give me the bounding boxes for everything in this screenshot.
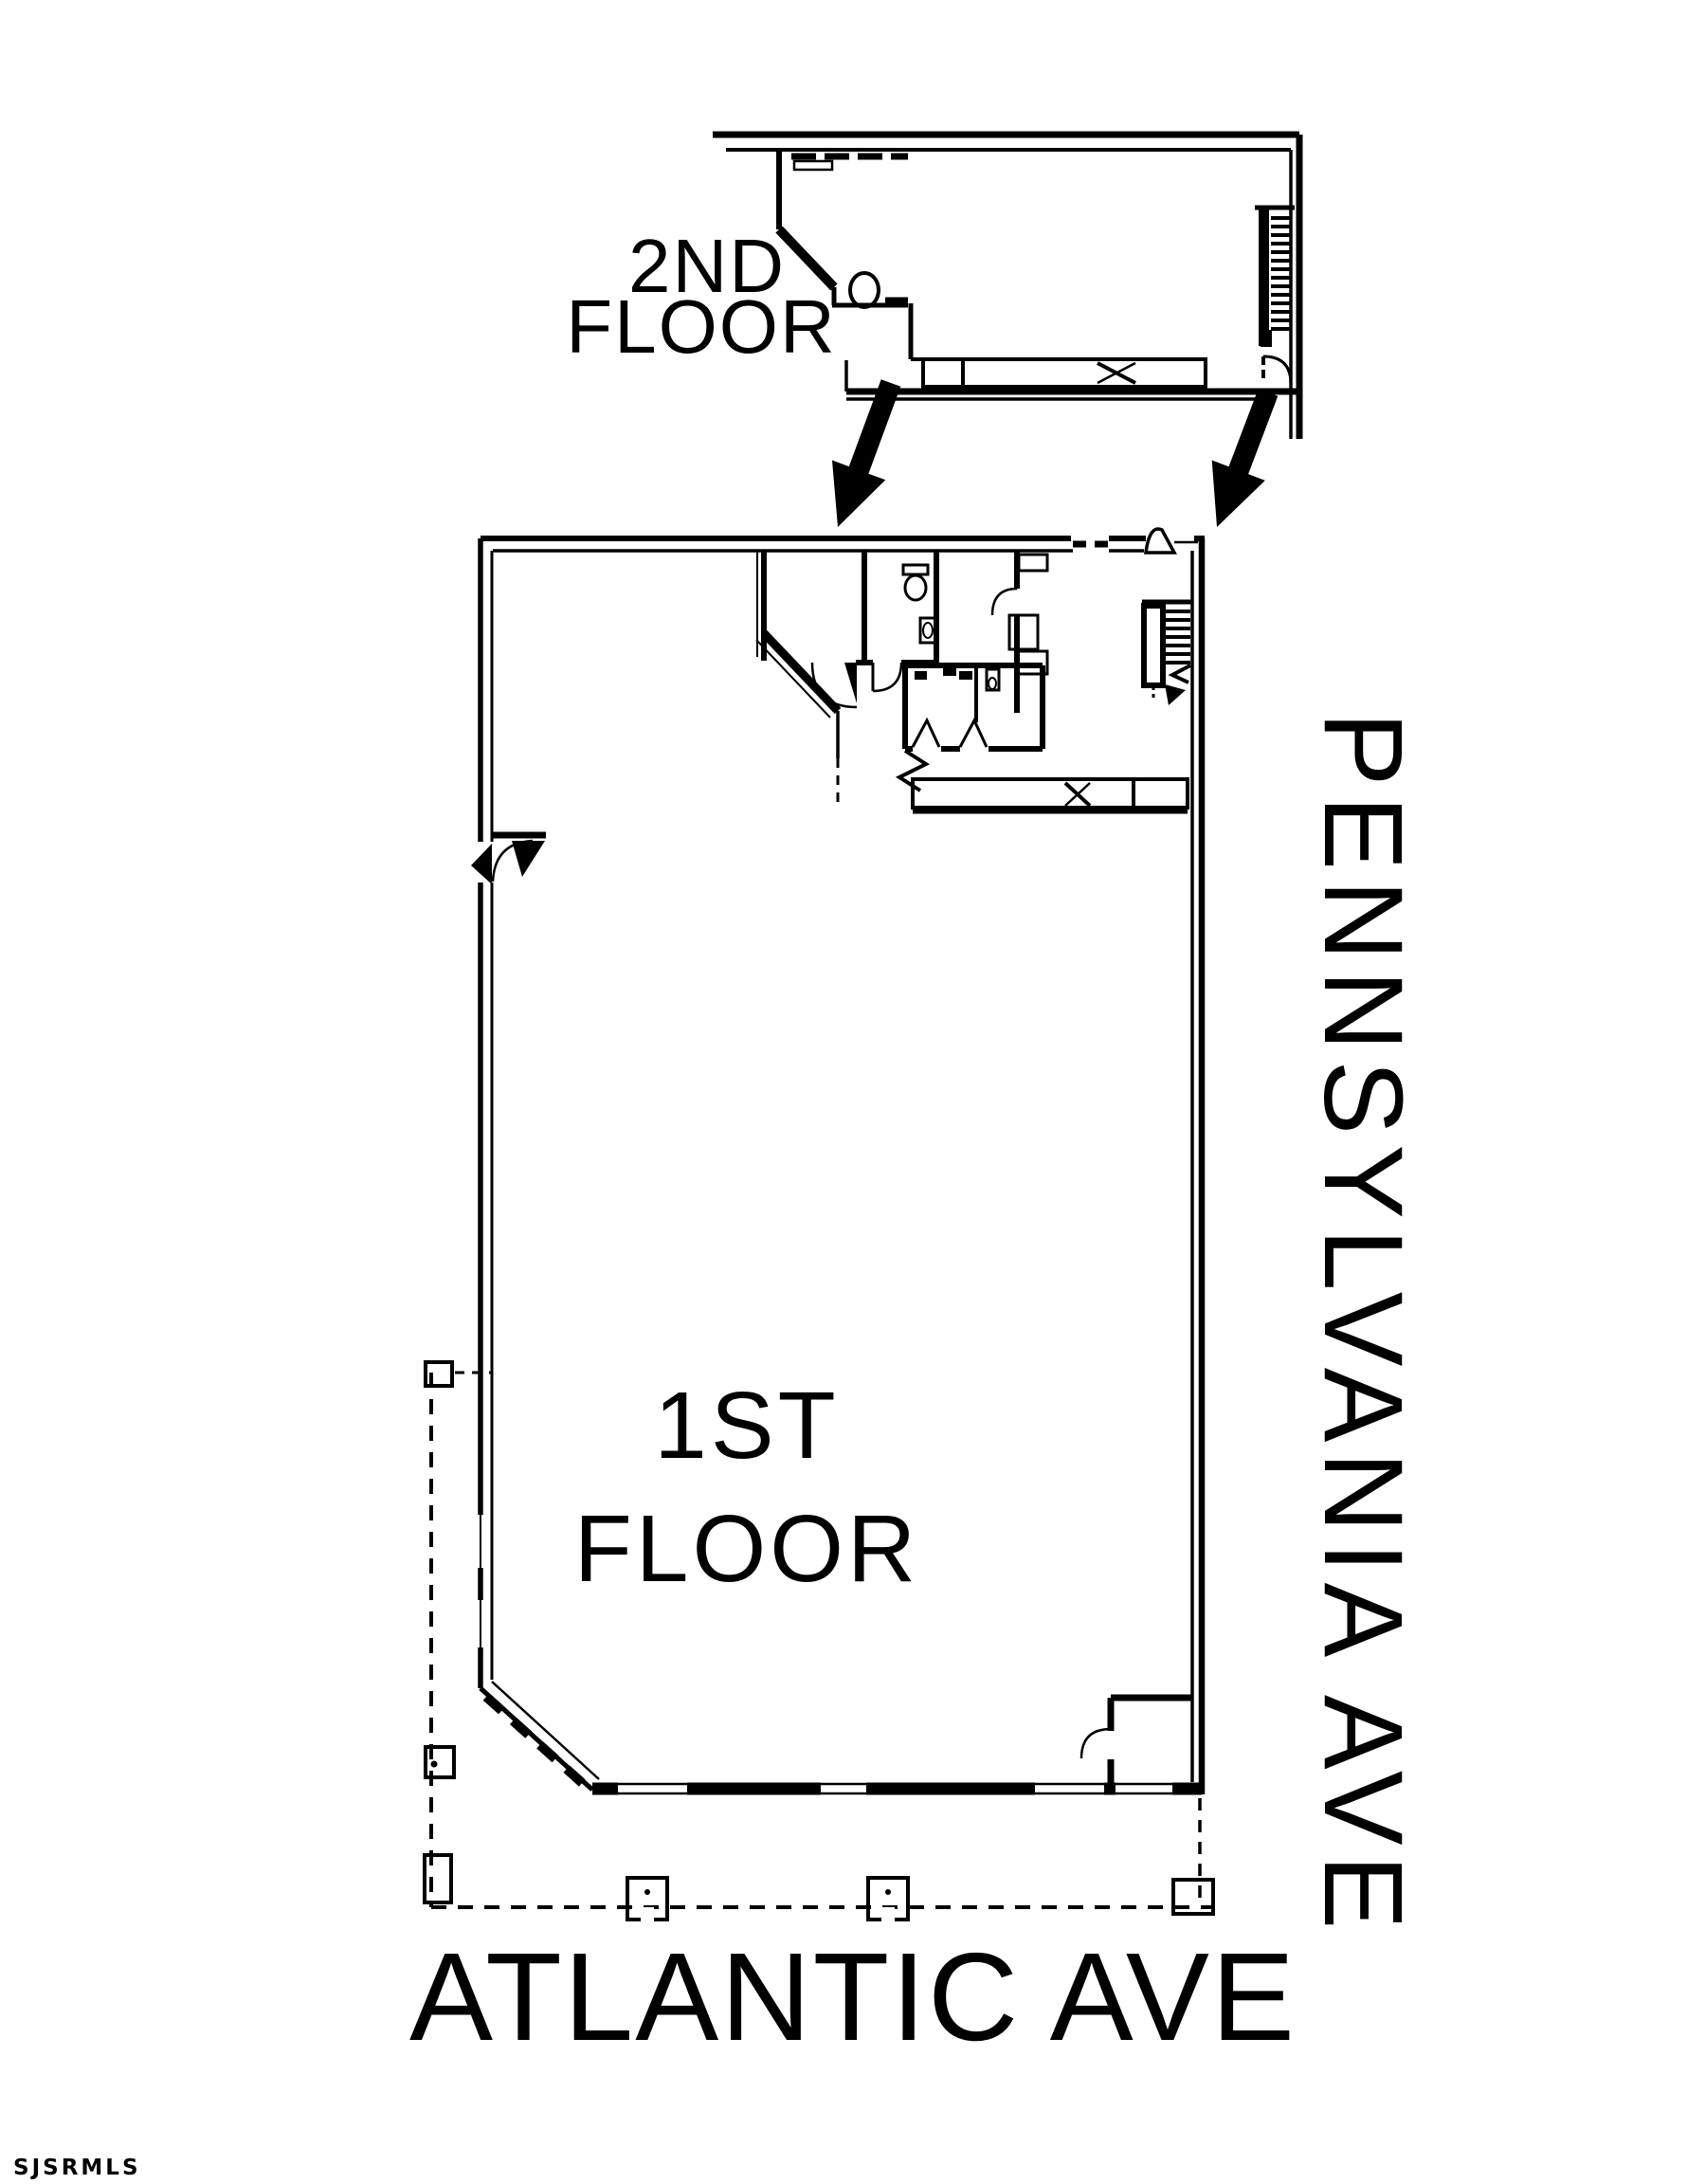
first-floor-plan [425,529,1213,1921]
side-entry-door [471,835,546,884]
bifold-door-icon [913,720,939,747]
restrooms [756,551,1047,802]
closet-counter [923,359,1206,387]
first-floor-stairs-icon [1142,602,1192,705]
toilet-icon [903,565,928,574]
street-label-atlantic-ave: ATLANTIC AVE [409,1927,1297,2066]
mls-watermark: SJSRMLS [13,2156,141,2180]
corner-entry-door [1146,529,1198,553]
chamfer-storefront [481,1682,599,1790]
door-arc-icon [1081,1729,1111,1758]
door-arc-icon [992,589,1017,615]
street-label-pennsylvania-ave: PENNSYLVANIA AVE [1300,712,1425,1939]
level-arrow-left-icon [832,379,900,527]
first-floor-label-line2: FLOOR [574,1496,919,1602]
second-floor-label-line2: FLOOR [566,284,837,369]
angled-window-wall [779,229,834,287]
second-floor-stairs-icon [1255,208,1295,347]
floor-plan-drawing: 2ND FLOOR 1ST FLOOR PENNSYLVANIA AVE ATL… [0,0,1687,2184]
toilet-icon [850,273,879,307]
vestibule [1081,1698,1192,1786]
service-counter [913,779,1188,811]
second-floor-door-arc-icon [1263,356,1291,384]
bifold-door-icon [960,720,987,747]
floor-plan-page: 2ND FLOOR 1ST FLOOR PENNSYLVANIA AVE ATL… [0,0,1687,2184]
level-arrow-right-icon [1212,389,1279,527]
first-floor-label-line1: 1ST [654,1373,839,1479]
door-arc-icon [873,663,901,691]
